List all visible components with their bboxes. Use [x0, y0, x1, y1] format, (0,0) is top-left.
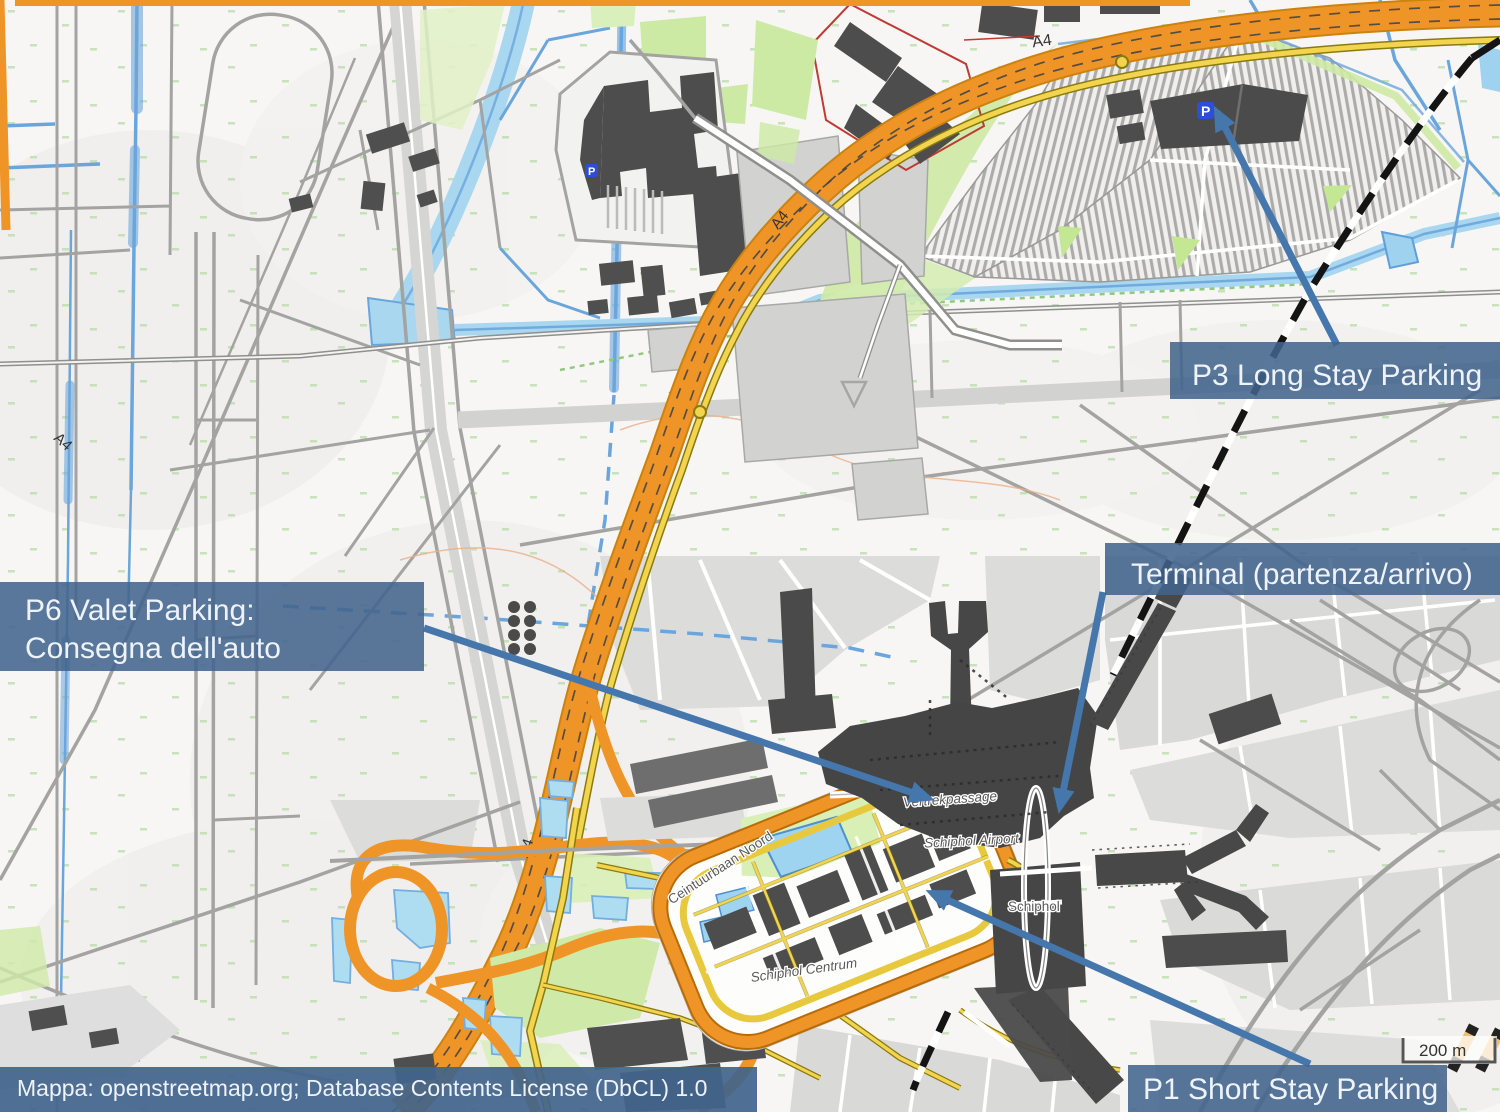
svg-text:Schiphol: Schiphol: [1008, 899, 1060, 914]
svg-text:Mappa: openstreetmap.org; Data: Mappa: openstreetmap.org; Database Conte…: [17, 1075, 707, 1101]
svg-text:Terminal (partenza/arrivo): Terminal (partenza/arrivo): [1131, 558, 1473, 591]
svg-text:200 m: 200 m: [1419, 1041, 1466, 1060]
svg-text:P: P: [1201, 103, 1210, 119]
svg-text:P3 Long Stay Parking: P3 Long Stay Parking: [1192, 359, 1482, 392]
svg-text:Consegna dell'auto: Consegna dell'auto: [25, 632, 281, 665]
svg-text:P: P: [588, 166, 595, 178]
svg-text:P1 Short Stay Parking: P1 Short Stay Parking: [1143, 1073, 1438, 1106]
svg-text:A4: A4: [1031, 32, 1053, 52]
svg-text:P6 Valet Parking:: P6 Valet Parking:: [25, 594, 255, 627]
